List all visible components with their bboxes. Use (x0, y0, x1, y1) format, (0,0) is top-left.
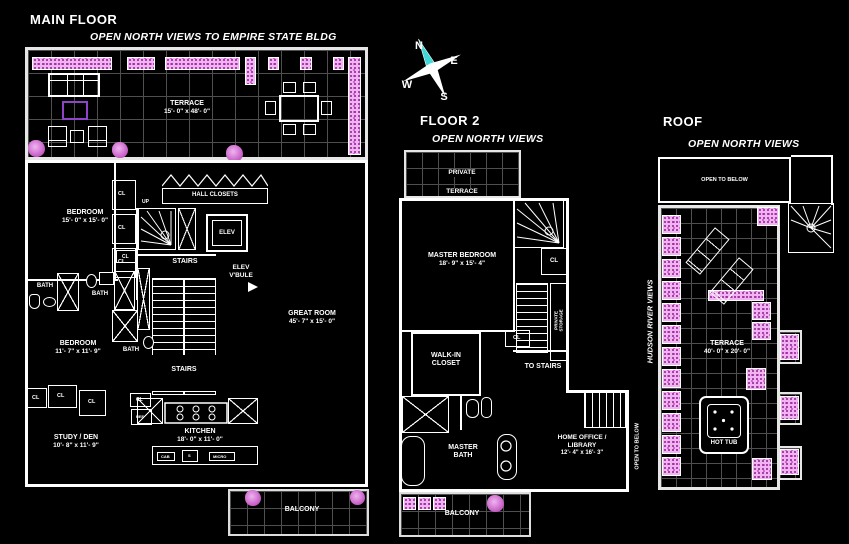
shaft-hatch (137, 268, 150, 330)
master-bath-label: MASTER BATH (433, 444, 493, 461)
hot-tub: HOT TUB (699, 396, 749, 454)
hot-tub-label: HOT TUB (701, 440, 747, 447)
master-bedroom-label: MASTER BEDROOM 18'- 9" x 15'- 4" (404, 252, 520, 268)
plant (350, 490, 365, 505)
closet: CL (541, 248, 568, 275)
elevator: ELEV (206, 214, 248, 252)
closet: CL (112, 214, 136, 244)
compass-s: S (440, 91, 447, 103)
master-bath-1: MASTER (433, 444, 493, 452)
floor2-balcony-label: BALCONY (432, 510, 492, 518)
planter (662, 457, 681, 476)
planter (662, 281, 681, 300)
bath2-label: BATH (85, 291, 115, 298)
planter (348, 57, 361, 155)
planter (165, 57, 240, 70)
side-table (70, 130, 84, 143)
roof-terrace-name: TERRACE (687, 340, 767, 348)
vanity-sinks (498, 435, 515, 478)
floor2-right-stairs (584, 392, 626, 428)
wall (138, 254, 216, 256)
main-balcony-label: BALCONY (262, 506, 342, 514)
door-arrow (248, 282, 258, 292)
floor2-open-to-below-label: OPEN TO BELOW (635, 408, 642, 484)
armchair (88, 126, 107, 147)
roof-title: ROOF (663, 114, 703, 130)
planter (662, 435, 681, 454)
winder-stair (514, 200, 564, 248)
bedroom2-dims: 11'- 7" x 11'- 9" (38, 348, 118, 356)
stairs-upper-label: STAIRS (155, 258, 215, 266)
roof-open-to-below-label: OPEN TO BELOW (660, 177, 789, 184)
planter (752, 302, 771, 320)
winder-stair (138, 208, 176, 250)
great-room-dims: 45'- 7" x 15'- 0" (272, 318, 352, 326)
private-terrace-2: TERRACE (444, 188, 479, 196)
great-room-label: GREAT ROOM 45'- 7" x 15'- 0" (272, 310, 352, 326)
study-name: STUDY / DEN (36, 434, 116, 442)
shower-hatch (114, 271, 135, 310)
elevator-label: ELEV (208, 230, 246, 237)
kitchen-dims: 18'- 0" x 11'- 0" (165, 436, 235, 444)
bathtub (401, 436, 425, 486)
closet-label: CL (122, 254, 129, 260)
planter (300, 57, 312, 70)
planter (780, 334, 799, 360)
planter (662, 413, 681, 432)
sink (43, 297, 56, 307)
dining-chair (303, 82, 316, 93)
compass-w: W (402, 79, 413, 91)
home-office-2: LIBRARY (538, 442, 626, 450)
study-label: STUDY / DEN 10'- 8" x 11'- 9" (36, 434, 116, 450)
planter (32, 57, 112, 70)
sofa (48, 73, 100, 97)
shower-hatch (57, 273, 79, 311)
micro-label: MICRO (213, 455, 226, 460)
floor2-title: FLOOR 2 (420, 113, 480, 129)
compass-n: N (415, 40, 423, 52)
walkin-1: WALK-IN (416, 352, 476, 360)
home-office-1: HOME OFFICE / (538, 434, 626, 442)
bidet (481, 397, 492, 418)
closet-label: CL (88, 399, 95, 406)
main-terrace-label: TERRACE 15'- 0" x 48'- 0" (150, 100, 224, 116)
dining-chair (321, 101, 332, 115)
kitchen-label: KITCHEN 18'- 0" x 11'- 0" (165, 428, 235, 444)
to-stairs-label: TO STAIRS (511, 363, 575, 371)
plant (112, 142, 128, 158)
winder-stair-lines (789, 204, 833, 252)
island-cabinet: CAB (157, 452, 175, 461)
closet: CL (112, 180, 136, 210)
private-terrace-1: PRIVATE (446, 169, 477, 177)
planter (662, 369, 681, 388)
toilet (466, 399, 479, 418)
dining-chair (283, 82, 296, 93)
armchair (48, 126, 67, 147)
shower-hatch (112, 310, 138, 342)
stove (164, 402, 228, 424)
stairs-lower-label: STAIRS (154, 366, 214, 374)
double-vanity (497, 434, 517, 480)
planter (245, 57, 256, 85)
wall (831, 155, 833, 205)
walk-in-closet: WALK-IN CLOSET (411, 332, 481, 396)
hot-tub-jets (708, 405, 739, 436)
master-bedroom-name: MASTER BEDROOM (404, 252, 520, 260)
closet-label: CL (118, 225, 125, 232)
closet-label: CL (32, 395, 39, 402)
wall (791, 155, 833, 157)
closet-label: CL (57, 393, 64, 400)
dining-chair (283, 124, 296, 135)
planter (757, 207, 779, 226)
main-floor-view-note: OPEN NORTH VIEWS TO EMPIRE STATE BLDG (90, 31, 337, 44)
main-terrace-name: TERRACE (150, 100, 224, 108)
floor2-view-note: OPEN NORTH VIEWS (432, 133, 543, 146)
closet: CL (116, 250, 136, 263)
wall (626, 390, 629, 492)
cab-label: CAB (161, 455, 170, 460)
counter-corner (228, 398, 258, 424)
planter (662, 215, 681, 234)
closet-label: CL (513, 335, 520, 342)
planter (268, 57, 279, 70)
plant (28, 140, 45, 157)
plant (245, 490, 261, 506)
planter (433, 497, 446, 510)
hot-tub-basin (707, 404, 741, 438)
closet: CL (505, 330, 530, 347)
planter (662, 237, 681, 256)
toilet (86, 274, 97, 288)
planter (662, 303, 681, 322)
planter (780, 396, 799, 420)
roof-open-to-below: OPEN TO BELOW (658, 157, 791, 203)
planter (127, 57, 155, 70)
elev-vestibule-label: ELEV V'BULE (216, 264, 266, 280)
roof-view-note: OPEN NORTH VIEWS (688, 138, 799, 151)
elev-vbule-2: V'BULE (216, 272, 266, 280)
up-label: UP (142, 199, 149, 205)
walkin-2: CLOSET (416, 360, 476, 368)
planter (780, 449, 799, 475)
compass-rose: N E S W (392, 28, 472, 108)
great-room-name: GREAT ROOM (272, 310, 352, 318)
hall-closet-doors (162, 174, 268, 187)
coffee-table (62, 101, 88, 120)
dining-chair (265, 101, 276, 115)
closet: CL (27, 388, 47, 408)
walkin-label: WALK-IN CLOSET (416, 352, 476, 369)
planter (662, 325, 681, 344)
roof-terrace-label: TERRACE 40'- 0" x 20'- 0" (687, 340, 767, 356)
winder-stair (788, 203, 834, 253)
planter (752, 322, 771, 340)
planter (662, 259, 681, 278)
bath1-label: BATH (30, 283, 60, 290)
private-storage-2: STORAGE (559, 290, 564, 350)
study-dims: 10'- 8" x 11'- 9" (36, 442, 116, 450)
shaft-hatch (178, 208, 196, 250)
sink-label: S (188, 454, 191, 459)
master-bedroom-dims: 18'- 9" x 15'- 4" (404, 260, 520, 268)
island-microwave: MICRO (209, 452, 235, 461)
winder-stair-lines (515, 201, 563, 247)
wall (513, 350, 569, 352)
toilet (29, 294, 40, 309)
compass-e: E (450, 55, 457, 67)
elev-vbule-1: ELEV (216, 264, 266, 272)
closet-label: CL (550, 258, 558, 265)
planter (746, 368, 766, 390)
planter (418, 497, 431, 510)
bedroom2-name: BEDROOM (38, 340, 118, 348)
planter (333, 57, 344, 70)
dining-table (279, 95, 319, 122)
planter (662, 347, 681, 366)
main-terrace-dims: 15'- 0" x 48'- 0" (150, 108, 224, 116)
hall-closets: HALL CLOSETS (162, 188, 268, 204)
master-bath-2: BATH (433, 452, 493, 460)
wall (460, 394, 462, 430)
main-floor-title: MAIN FLOOR (30, 12, 117, 28)
roof-terrace-dims: 40'- 0" x 20'- 0" (687, 348, 767, 356)
bath3-label: BATH (116, 347, 146, 354)
sink (99, 272, 114, 285)
private-storage-label: PRIVATE STORAGE (554, 290, 565, 350)
planter (662, 391, 681, 410)
closet: CL (79, 390, 106, 416)
home-office-dims: 12'- 4" x 16'- 3" (538, 450, 626, 457)
wall (513, 198, 515, 332)
kitchen-name: KITCHEN (165, 428, 235, 436)
kitchen-island: CAB S MICRO (152, 446, 258, 465)
closet-label: CL (118, 191, 125, 198)
counter-corner (137, 398, 163, 424)
island-sink: S (182, 450, 198, 462)
home-office-label: HOME OFFICE / LIBRARY 12'- 4" x 16'- 3" (538, 434, 626, 457)
planter (752, 458, 772, 480)
hudson-river-views-label: HUDSON RIVER VIEWS (646, 257, 655, 387)
hall-closets-label: HALL CLOSETS (163, 192, 267, 199)
floorplan-sheet: MAIN FLOOR OPEN NORTH VIEWS TO EMPIRE ST… (0, 0, 849, 544)
shower-hatch (402, 396, 449, 433)
winder-stair-lines (139, 209, 175, 249)
private-terrace-label: PRIVATE TERRACE (412, 160, 512, 198)
dining-chair (303, 124, 316, 135)
toilet (143, 336, 154, 349)
closet: CL (48, 385, 77, 408)
planter (403, 497, 416, 510)
bedroom2-label: BEDROOM 11'- 7" x 11'- 9" (38, 340, 118, 356)
